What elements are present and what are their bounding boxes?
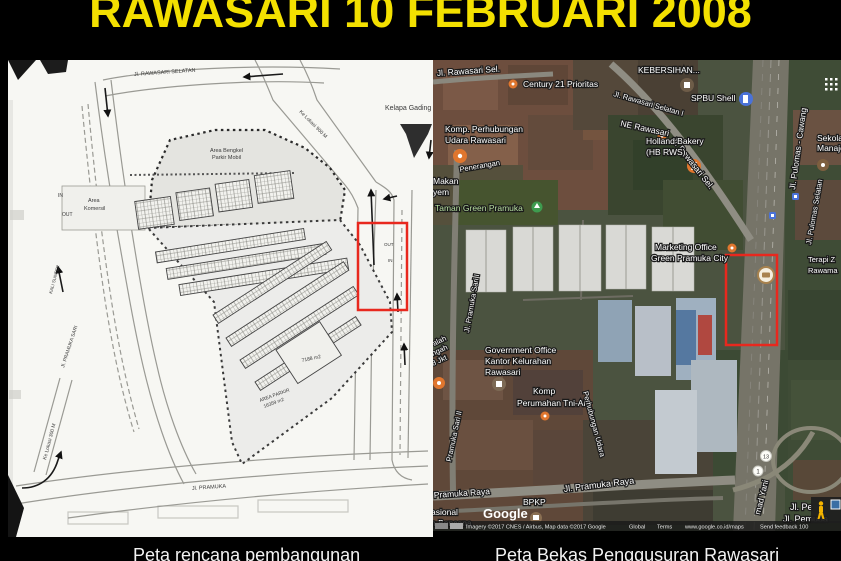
scale-label: 100 (799, 525, 808, 531)
global-link[interactable]: Global (629, 525, 645, 531)
komp-perhubungan-label-2: Udara Rawasari (445, 135, 506, 145)
maps-url[interactable]: www.google.co.id/maps (684, 525, 744, 531)
slide: RAWASARI 10 FEBRUARI 2008 (0, 0, 841, 561)
taman-green-pramuka-label: Taman Green Pramuka (435, 203, 523, 213)
scan-smudge (9, 390, 21, 399)
area-komersil-label-1: Area (88, 198, 101, 204)
marketing-office-label-1: Marketing Office (655, 242, 717, 252)
send-feedback-link[interactable]: Send feedback (760, 525, 798, 531)
century21-label: Century 21 Prioritas (523, 79, 598, 89)
government-glyph (496, 381, 502, 387)
right-map-caption: Peta Bekas Penggusuran Rawasari (495, 545, 779, 561)
pegman-control[interactable] (811, 497, 841, 523)
holland-bakery-label-1: Holland Bakery (646, 136, 704, 146)
area-bengkel-label-1: Area Bengkel (210, 148, 243, 154)
holland-bakery-label-2: (HB RWS) (646, 147, 686, 157)
komp-tni-label-2: Perumahan Tni-Al (517, 398, 585, 408)
sekolah-label-1: Sekola (817, 133, 841, 143)
jl-pe-label: Jl. Pe (790, 502, 813, 512)
komp-perhubungan-label-1: Komp. Perhubungan (445, 124, 523, 134)
grid-icon[interactable] (825, 78, 838, 91)
government-label-1: Government Office (485, 345, 556, 355)
in-gate-label: IN (388, 258, 393, 263)
satellite-map: 1 13 Jl. Rawasari Sel. Century 21 Priori… (433, 60, 841, 531)
scan-edge-shade (8, 100, 13, 530)
google-logo[interactable]: Google (483, 506, 528, 521)
left-map-caption: Peta rencana pembangunan (133, 545, 360, 561)
gas-pump-glyph (743, 95, 748, 103)
site-plan-map: Jl. RAWASARI SELATAN Kelapa Gading Ke Lo… (8, 60, 433, 537)
out-label: OUT (62, 212, 73, 218)
slide-title: RAWASARI 10 FEBRUARI 2008 (0, 0, 841, 38)
map-thumbnail-toggle[interactable] (831, 500, 840, 509)
imagery-credit: Imagery ©2017 CNES / Airbus, Map data ©2… (466, 524, 606, 531)
road-badge-inner (762, 273, 770, 278)
century21-poi-dot (512, 83, 515, 86)
yem-label: yem (433, 187, 449, 197)
asional-label: asional (433, 507, 458, 517)
terapi-label-2: Rawama (808, 266, 838, 275)
terms-link[interactable]: Terms (657, 525, 672, 531)
kebersihan-glyph (684, 82, 690, 88)
komp-tni-label-1: Komp (533, 386, 555, 396)
scan-smudge (10, 210, 24, 220)
makan-label: Makan (433, 176, 459, 186)
jkt8-dot (437, 381, 441, 385)
site-plan-svg: Jl. RAWASARI SELATAN Kelapa Gading Ke Lo… (8, 60, 433, 537)
terapi-label-1: Terapi Z (808, 255, 836, 264)
imagery-thumbnail[interactable] (450, 523, 463, 529)
in-label: IN (58, 193, 63, 199)
spbu-shell-label: SPBU Shell (691, 93, 736, 103)
kelapa-gading-label: Kelapa Gading (385, 105, 431, 112)
bpkp-glyph (533, 515, 539, 520)
sekolah-label-2: Manaje (817, 143, 841, 153)
imagery-thumbnail[interactable] (435, 523, 448, 529)
komp-perhubungan-dot (458, 154, 462, 158)
attribution-bar: Imagery ©2017 CNES / Airbus, Map data ©2… (433, 521, 841, 531)
bus-glyph (771, 214, 774, 217)
out-gate-label: OUT (384, 242, 394, 247)
bus-glyph (794, 195, 797, 198)
shield-13-label: 13 (763, 455, 769, 461)
government-label-3: Rawasari (485, 367, 521, 377)
government-label-2: Kantor Kelurahan (485, 356, 551, 366)
satellite-svg: 1 13 Jl. Rawasari Sel. Century 21 Priori… (433, 60, 841, 531)
komp-tni-dot (544, 415, 547, 418)
kebersihan-label: KEBERSIHAN... (638, 65, 700, 75)
marketing-dot (731, 247, 734, 250)
area-bengkel-label-2: Parkir Mobil (212, 155, 241, 161)
marketing-office-label-2: Green Pramuka City (651, 253, 729, 263)
area-komersil-label-2: Komersil (84, 206, 105, 212)
sekolah-dot (821, 163, 825, 167)
